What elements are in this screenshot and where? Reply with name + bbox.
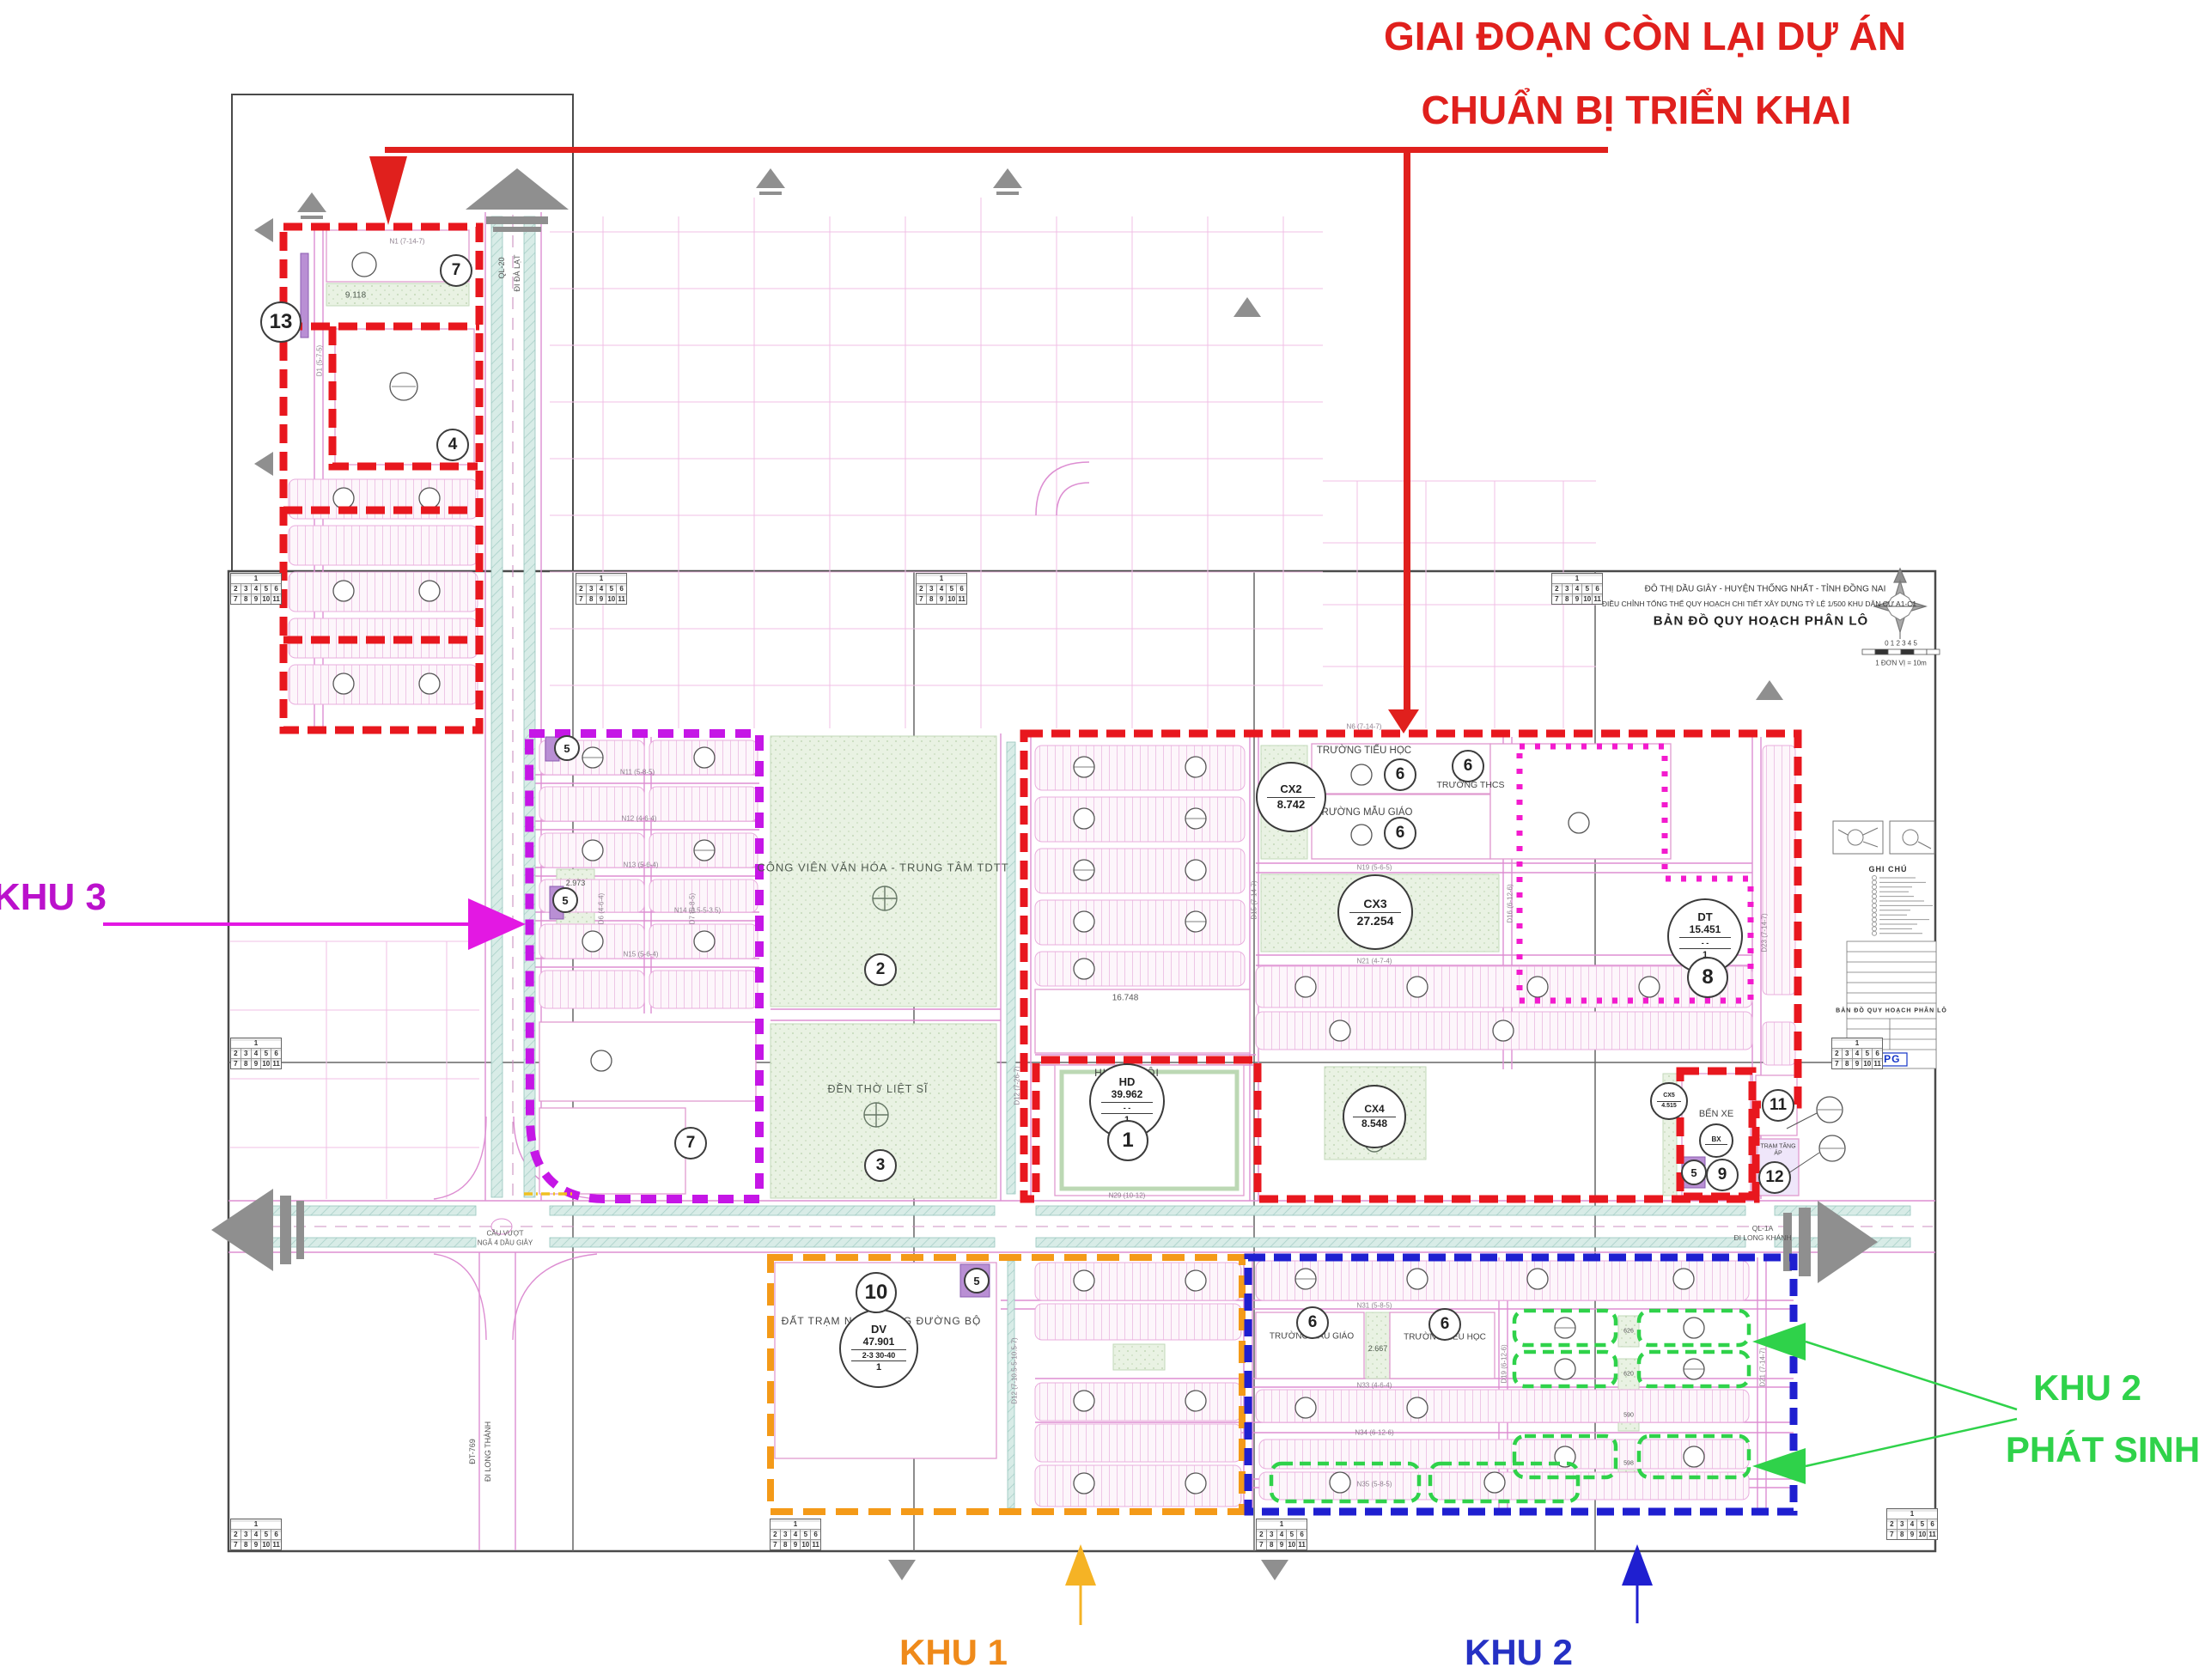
map-graphics	[0, 0, 2199, 1680]
badge-10: 10	[856, 1272, 897, 1313]
road-d12: D12 (7-26-7)	[1014, 1066, 1021, 1105]
road-n6: N6 (7-14-7)	[1347, 723, 1382, 731]
bx-code: BX	[1711, 1135, 1721, 1143]
cx4-area: 8.548	[1361, 1118, 1387, 1130]
sheet-cell: 11	[810, 1540, 820, 1549]
sheet-cell: 5	[800, 1530, 810, 1539]
cx3-area: 27.254	[1357, 914, 1394, 928]
sheet-cell: 10	[1581, 594, 1592, 604]
block-circle-bx: BX	[1699, 1123, 1733, 1158]
ql20-label: QL-20	[497, 257, 506, 278]
road-n33: N33 (4-6-4)	[1357, 1382, 1392, 1390]
sheet-cell: 11	[271, 1540, 281, 1549]
sheet-cell: 2	[771, 1530, 780, 1539]
sheet-cell: 8	[1842, 1059, 1852, 1068]
sheet-cell: 2	[231, 1049, 241, 1058]
sheet-cell: 7	[1887, 1530, 1897, 1539]
sheet-cell: 6	[271, 1530, 281, 1539]
hd-code: HD	[1119, 1076, 1136, 1089]
sheet-cell: 3	[241, 1049, 251, 1058]
sheet-cell: 4	[1907, 1519, 1917, 1529]
sheet-cell: 1	[1887, 1509, 1937, 1519]
road-n21: N21 (4-7-4)	[1357, 958, 1392, 965]
road-n29: N29 (10-12)	[1109, 1192, 1146, 1200]
block-16748: 16.748	[1112, 994, 1139, 1003]
red-annotation-arrows	[369, 147, 1608, 733]
sheet-cell: 3	[1897, 1519, 1907, 1529]
sheet-cell: 4	[251, 1530, 261, 1539]
tile-620: 620	[1623, 1372, 1634, 1378]
truong-tieu-hoc-label: TRƯỜNG TIỂU HỌC	[1317, 746, 1411, 756]
sheet-index-table-6: 1 23456 7891011	[1831, 1038, 1883, 1069]
sheet-index-table-9: 1 23456 7891011	[1256, 1519, 1307, 1550]
sheet-cell: 6	[616, 584, 626, 593]
sheet-cell: 3	[1562, 584, 1572, 593]
sheet-cell: 7	[1257, 1540, 1266, 1549]
sheet-cell: 7	[771, 1540, 780, 1549]
sheet-cell: 9	[251, 1540, 261, 1549]
dv-area: 47.901	[863, 1336, 895, 1348]
sheet-cell: 11	[1927, 1530, 1937, 1539]
sheet-cell: 9	[596, 594, 606, 604]
khu1-arrow	[1065, 1544, 1096, 1625]
sheet-cell: 6	[271, 584, 281, 593]
badge-8: 8	[1687, 957, 1728, 998]
sheet-cell: 3	[1842, 1049, 1852, 1058]
block-circle-cx2: CX2 8.742	[1256, 762, 1326, 832]
road-n15: N15 (5-6-4)	[624, 951, 659, 959]
dt769-label: ĐT-769	[468, 1439, 477, 1464]
road-d16: D16 (6-12-6)	[1507, 884, 1514, 922]
sheet-cell: 10	[260, 1540, 271, 1549]
road-n13: N13 (5-6-4)	[624, 861, 659, 869]
scale-bar	[1862, 649, 1940, 654]
sheet-cell: 8	[1266, 1540, 1276, 1549]
road-d21: D21 (7-14-7)	[1759, 1348, 1767, 1386]
khu2-phatsinh-label-line1: KHU 2	[2033, 1367, 2141, 1409]
badge-1-hd: 1	[1107, 1120, 1148, 1161]
cau-vuot-label-2: NGÃ 4 DẦU GIÂY	[478, 1239, 533, 1247]
sheet-cell: 2	[1552, 584, 1562, 593]
titleblock-line2: ĐIỀU CHỈNH TỔNG THỂ QUY HOẠCH CHI TIẾT X…	[1602, 600, 1916, 608]
road-d12b: D12 (7-10.5-5-10.5-7)	[1011, 1337, 1019, 1403]
tile-626: 626	[1623, 1329, 1634, 1335]
sheet-cell: 1	[231, 574, 281, 583]
sheet-cell: 1	[576, 574, 626, 583]
dv-num: 1	[876, 1362, 881, 1373]
hd-mid: - -	[1124, 1104, 1131, 1112]
road-d19: D19 (6-12-6)	[1501, 1344, 1508, 1383]
park-label: CÔNG VIÊN VĂN HÓA - TRUNG TÂM TDTT	[757, 861, 1008, 874]
sheet-cell: 9	[251, 594, 261, 604]
scale-ticks: 0 1 2 3 4 5	[1885, 640, 1917, 648]
sheet-cell: 5	[1286, 1530, 1296, 1539]
sheet-cell: 2	[576, 584, 586, 593]
green-strip-area: 9.118	[345, 291, 366, 301]
sheet-cell: 3	[586, 584, 596, 593]
sheet-cell: 7	[576, 594, 586, 604]
strip-2667: 2.667	[1368, 1344, 1388, 1353]
sheet-cell: 7	[231, 1059, 241, 1068]
road-d6: D6 (4-6-4)	[598, 893, 606, 924]
sheet-cell: 2	[1257, 1530, 1266, 1539]
sheet-cell: 10	[1916, 1530, 1927, 1539]
legend-title: GHI CHÚ	[1869, 865, 1908, 873]
road-n12: N12 (4-6-4)	[622, 815, 657, 823]
cx3-code: CX3	[1363, 897, 1386, 910]
dt-code: DT	[1697, 911, 1712, 924]
ql1a-east-label-1: QL-1A	[1752, 1224, 1774, 1233]
sheet-index-table-1: 1 23456 7891011	[230, 573, 282, 605]
planning-map-sheet: GIAI ĐOẠN CÒN LẠI DỰ ÁN CHUẨN BỊ TRIỂN K…	[0, 0, 2199, 1680]
sheet-cell: 7	[1552, 594, 1562, 604]
sheet-cell: 7	[917, 594, 926, 604]
road-n34: N34 (6-12-6)	[1355, 1429, 1393, 1437]
badge-6-tth: 6	[1384, 758, 1416, 791]
cx5-code: CX5	[1663, 1093, 1675, 1099]
sheet-cell: 9	[1572, 594, 1582, 604]
sheet-index-table-4: 1 23456 7891011	[1551, 573, 1603, 605]
khu2-phatsinh-label-line2: PHÁT SINH	[2006, 1429, 2199, 1470]
sheet-cell: 7	[231, 1540, 241, 1549]
block-circle-cx3: CX3 27.254	[1337, 874, 1413, 950]
road-n14: N14 (3.5-5-3.5)	[674, 907, 721, 915]
sheet-cell: 9	[251, 1059, 261, 1068]
sheet-index-table-2: 1 23456 7891011	[576, 573, 627, 605]
sheet-cell: 6	[1927, 1519, 1937, 1529]
sheet-cell: 3	[1266, 1530, 1276, 1539]
remaining-phase-title-line1: GIAI ĐOẠN CÒN LẠI DỰ ÁN	[1384, 13, 1906, 59]
sheet-cell: 1	[231, 1038, 281, 1048]
sheet-index-table-8: 1 23456 7891011	[770, 1519, 821, 1550]
signature-table-title: BẢN ĐỒ QUY HOẠCH PHÂN LÔ	[1836, 1008, 1947, 1014]
khu2-phatsinh-arrows	[1752, 1323, 2017, 1484]
sheet-cell: 8	[241, 594, 251, 604]
badge-5-khu1: 5	[964, 1268, 990, 1293]
sheet-cell: 8	[586, 594, 596, 604]
sheet-cell: 9	[790, 1540, 801, 1549]
road-n19: N19 (5-6-5)	[1357, 864, 1392, 872]
sheet-cell: 6	[1592, 584, 1602, 593]
sheet-cell: 8	[241, 1059, 251, 1068]
scale-note: 1 ĐƠN VỊ = 10m	[1875, 660, 1927, 667]
sheet-cell: 11	[616, 594, 626, 604]
badge-6-thcs: 6	[1452, 750, 1484, 782]
sheet-cell: 7	[231, 594, 241, 604]
legend-rows	[1873, 876, 1934, 936]
sheet-cell: 10	[260, 1059, 271, 1068]
sheet-cell: 2	[1832, 1049, 1842, 1058]
sheet-cell: 10	[606, 594, 616, 604]
sheet-cell: 11	[271, 1059, 281, 1068]
sheet-cell: 1	[1832, 1038, 1882, 1048]
badge-12: 12	[1758, 1161, 1791, 1194]
road-d23: D23 (7-14-7)	[1761, 913, 1769, 952]
block-circle-dv: DV 47.901 2-3 30-40 1	[839, 1309, 918, 1388]
sheet-cell: 5	[260, 1530, 271, 1539]
badge-7-khu3: 7	[674, 1127, 707, 1160]
dt-mid: - -	[1702, 939, 1709, 947]
sheet-cell: 8	[780, 1540, 790, 1549]
badge-13: 13	[260, 301, 302, 343]
badge-2-park: 2	[864, 953, 897, 986]
khu3-arrow	[103, 898, 526, 950]
sheet-cell: 4	[936, 584, 947, 593]
sheet-cell: 11	[1872, 1059, 1882, 1068]
sheet-cell: 5	[1861, 1049, 1872, 1058]
sheet-cell: 7	[1832, 1059, 1842, 1068]
hd-area: 39.962	[1112, 1089, 1143, 1101]
sheet-cell: 3	[780, 1530, 790, 1539]
sheet-cell: 1	[1552, 574, 1602, 583]
sheet-cell: 9	[1907, 1530, 1917, 1539]
sheet-cell: 3	[926, 584, 936, 593]
sheet-cell: 10	[260, 594, 271, 604]
strip-2973: 2.973	[566, 879, 586, 887]
khu2-label: KHU 2	[1465, 1632, 1573, 1673]
badge-11: 11	[1762, 1089, 1794, 1122]
sheet-cell: 10	[1286, 1540, 1296, 1549]
badge-4-zonea: 4	[436, 429, 469, 461]
sheet-cell: 8	[241, 1540, 251, 1549]
sheet-cell: 6	[956, 584, 966, 593]
sheet-cell: 5	[946, 584, 956, 593]
sheet-cell: 3	[241, 1530, 251, 1539]
sheet-cell: 10	[800, 1540, 810, 1549]
khu1-label: KHU 1	[899, 1632, 1008, 1673]
sheet-cell: 10	[1861, 1059, 1872, 1068]
sheet-cell: 3	[241, 584, 251, 593]
sheet-cell: 8	[1562, 594, 1572, 604]
tile-598: 598	[1623, 1461, 1634, 1467]
sheet-cell: 4	[251, 584, 261, 593]
block-circle-cx5: CX5 4.515	[1650, 1082, 1688, 1120]
di-long-thanh-label: ĐI LONG THÀNH	[484, 1421, 492, 1482]
road-d7: D7 (5-8-5)	[689, 893, 697, 924]
sheet-cell: 11	[1592, 594, 1602, 604]
road-n1: N1 (7-14-7)	[390, 238, 425, 246]
ql1a-east-label-2: ĐI LONG KHÁNH	[1733, 1233, 1791, 1242]
badge-5-khu3-mid: 5	[552, 887, 578, 913]
cx5-area: 4.515	[1661, 1103, 1677, 1110]
dv-mid: 2-3 30-40	[862, 1351, 896, 1360]
titleblock-line1: ĐÔ THỊ DẦU GIÂY - HUYỆN THỐNG NHẤT - TỈN…	[1645, 585, 1886, 594]
sheet-cell: 4	[251, 1049, 261, 1058]
tile-590: 590	[1623, 1413, 1634, 1419]
road-n11: N11 (5-8-5)	[620, 769, 655, 776]
detail-boxes	[1833, 821, 1934, 854]
sheet-cell: 11	[1296, 1540, 1307, 1549]
badge-9-benxe: 9	[1706, 1159, 1739, 1191]
sheet-cell: 1	[1257, 1519, 1307, 1529]
sheet-cell: 2	[917, 584, 926, 593]
sheet-cell: 4	[1572, 584, 1582, 593]
sheet-index-table-5: 1 23456 7891011	[230, 1038, 282, 1069]
remaining-phase-title-line2: CHUẨN BỊ TRIỂN KHAI	[1422, 87, 1852, 133]
sheet-cell: 8	[1897, 1530, 1907, 1539]
sheet-cell: 6	[271, 1049, 281, 1058]
road-n31: N31 (5-8-5)	[1357, 1302, 1392, 1310]
sheet-cell: 10	[946, 594, 956, 604]
sheet-cell: 2	[1887, 1519, 1897, 1529]
road-d15: D15 (7-14-7)	[1251, 880, 1258, 919]
di-da-lat-label: ĐI ĐÀ LẠT	[513, 254, 521, 291]
temple-label: ĐỀN THỜ LIỆT SĨ	[828, 1083, 929, 1095]
khu2-arrow	[1622, 1544, 1653, 1623]
sheet-cell: 5	[606, 584, 616, 593]
sheet-cell: 1	[231, 1519, 281, 1529]
sheet-cell: 9	[1276, 1540, 1287, 1549]
cau-vuot-label-1: CẦU VƯỢT	[486, 1230, 523, 1238]
sheet-cell: 11	[956, 594, 966, 604]
sheet-cell: 2	[231, 584, 241, 593]
sheet-cell: 4	[1852, 1049, 1862, 1058]
road-n35: N35 (5-8-5)	[1357, 1481, 1392, 1488]
badge-3-park: 3	[864, 1149, 897, 1182]
sheet-cell: 1	[771, 1519, 820, 1529]
cx2-area: 8.742	[1277, 799, 1306, 812]
sheet-cell: 9	[1852, 1059, 1862, 1068]
ben-xe-label: BẾN XE	[1699, 1109, 1733, 1119]
titleblock-line3: BẢN ĐỒ QUY HOẠCH PHÂN LÔ	[1654, 614, 1868, 629]
khu3-label: KHU 3	[0, 876, 107, 919]
sheet-cell: 4	[1276, 1530, 1287, 1539]
badge-6-tth2: 6	[1428, 1308, 1461, 1341]
cx2-code: CX2	[1280, 783, 1301, 796]
sheet-cell: 2	[231, 1530, 241, 1539]
sheet-index-table-3: 1 23456 7891011	[916, 573, 967, 605]
sheet-cell: 6	[1872, 1049, 1882, 1058]
tram-tang-ap-label: TRẠM TĂNG ÁP	[1759, 1144, 1797, 1159]
block-circle-cx4: CX4 8.548	[1343, 1085, 1406, 1148]
sheet-cell: 5	[1581, 584, 1592, 593]
dv-code: DV	[871, 1324, 886, 1336]
sheet-cell: 6	[810, 1530, 820, 1539]
sheet-cell: 6	[1296, 1530, 1307, 1539]
badge-6-tmg2: 6	[1296, 1306, 1329, 1339]
sheet-index-table-7: 1 23456 7891011	[230, 1519, 282, 1550]
road-d1: D1 (5-7-5)	[316, 345, 324, 376]
dt-area: 15.451	[1690, 924, 1721, 936]
sheet-cell: 9	[936, 594, 947, 604]
sheet-cell: 5	[260, 1049, 271, 1058]
sheet-cell: 4	[790, 1530, 801, 1539]
sheet-index-table-10: 1 23456 7891011	[1886, 1508, 1938, 1540]
badge-5-benxe: 5	[1681, 1160, 1707, 1185]
cx4-code: CX4	[1364, 1104, 1384, 1116]
sheet-cell: 1	[917, 574, 966, 583]
sheet-cell: 4	[596, 584, 606, 593]
sheet-cell: 5	[260, 584, 271, 593]
sheet-cell: 8	[926, 594, 936, 604]
badge-7-zonea: 7	[440, 254, 472, 287]
badge-5-khu3-top: 5	[554, 735, 580, 761]
sheet-cell: 5	[1916, 1519, 1927, 1529]
sheet-cell: 11	[271, 594, 281, 604]
badge-6-tmg: 6	[1384, 817, 1416, 849]
